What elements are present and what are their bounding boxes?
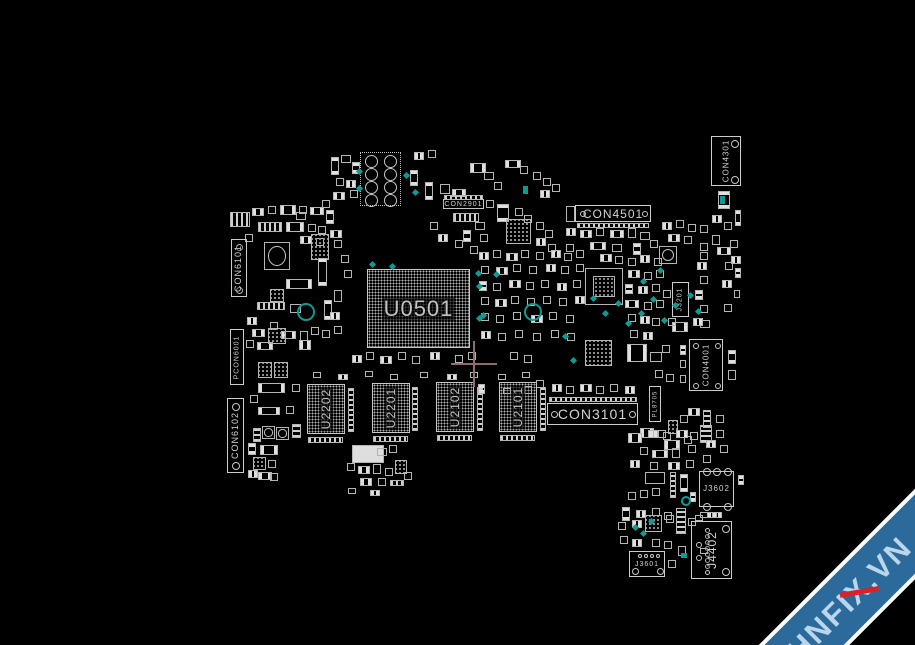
component-label: CON4301 bbox=[722, 140, 730, 183]
smd-part bbox=[693, 318, 703, 326]
smd-part bbox=[520, 166, 528, 174]
smd-part bbox=[552, 184, 560, 192]
smd-part bbox=[680, 474, 688, 492]
smd-part bbox=[248, 470, 258, 478]
smd-part bbox=[334, 326, 342, 334]
pad-circle bbox=[580, 211, 586, 217]
smd-part bbox=[495, 299, 507, 307]
component-label: CON4501 bbox=[583, 208, 643, 220]
smd-part bbox=[250, 395, 258, 403]
smd-part bbox=[644, 302, 652, 310]
smd-part bbox=[580, 230, 592, 238]
component-con3101[interactable]: CON3101 bbox=[547, 403, 638, 425]
smd-part bbox=[730, 240, 738, 248]
smd-part bbox=[663, 290, 671, 298]
smd-part bbox=[700, 252, 708, 260]
smd-part bbox=[590, 242, 606, 250]
smd-part bbox=[493, 250, 501, 258]
smd-part bbox=[688, 224, 696, 232]
smd-part bbox=[280, 205, 296, 215]
smd-part bbox=[670, 472, 676, 498]
smd-part bbox=[656, 300, 664, 308]
pad-circle bbox=[724, 503, 732, 511]
smd-part bbox=[248, 443, 256, 455]
component-label: U2202 bbox=[319, 387, 333, 431]
smd-part bbox=[540, 387, 546, 431]
smd-part bbox=[511, 296, 519, 304]
component-label: U2101 bbox=[511, 385, 525, 429]
smd-part bbox=[580, 384, 592, 392]
component-con6101[interactable]: CON6101 bbox=[231, 239, 247, 297]
smd-part bbox=[292, 424, 301, 438]
smd-part bbox=[478, 384, 485, 394]
smd-part bbox=[498, 374, 506, 380]
smd-part bbox=[253, 428, 261, 442]
via-marker bbox=[369, 261, 376, 268]
smd-part bbox=[385, 468, 393, 476]
smd-part bbox=[707, 512, 717, 518]
smd-part bbox=[274, 362, 288, 378]
smd-part bbox=[543, 178, 551, 186]
smd-part bbox=[697, 262, 707, 270]
component-label: CON6102 bbox=[231, 412, 240, 459]
pad-circle bbox=[656, 554, 660, 558]
component-u2201[interactable]: U2201 bbox=[372, 383, 410, 433]
smd-part bbox=[479, 252, 489, 260]
pad-circle bbox=[629, 411, 636, 418]
smd-part bbox=[268, 460, 276, 468]
smd-part bbox=[668, 234, 680, 242]
smd-part bbox=[566, 386, 574, 394]
smd-part bbox=[688, 445, 696, 453]
smd-part bbox=[533, 172, 541, 180]
smd-part bbox=[333, 192, 345, 200]
smd-part bbox=[712, 235, 720, 245]
smd-part bbox=[346, 180, 356, 188]
smd-part bbox=[566, 228, 576, 236]
smd-part bbox=[561, 266, 569, 274]
smd-part bbox=[712, 215, 722, 223]
smd-part bbox=[529, 266, 537, 274]
smd-part bbox=[350, 190, 358, 198]
component-j4402[interactable]: J4402 bbox=[691, 521, 732, 579]
smd-part bbox=[515, 330, 523, 338]
smd-part bbox=[506, 219, 531, 244]
smd-part bbox=[552, 384, 562, 392]
smd-part bbox=[573, 280, 581, 288]
smd-part bbox=[566, 206, 575, 222]
smd-part bbox=[252, 208, 264, 216]
component-pl8705[interactable]: PL8705 bbox=[649, 386, 661, 422]
smd-part bbox=[680, 345, 686, 355]
component-label: J3601 bbox=[635, 561, 659, 568]
smd-part bbox=[310, 207, 324, 215]
smd-part bbox=[676, 430, 688, 438]
via-marker bbox=[570, 357, 577, 364]
smd-part bbox=[447, 374, 457, 380]
smd-part bbox=[690, 432, 698, 440]
component-label: CON2901 bbox=[444, 201, 482, 208]
smd-part bbox=[628, 228, 636, 238]
smd-part bbox=[625, 300, 639, 308]
smd-part bbox=[524, 355, 532, 363]
component-con4001[interactable]: CON4001 bbox=[689, 339, 723, 391]
smd-part bbox=[650, 352, 662, 362]
smd-part bbox=[640, 490, 648, 498]
pad-circle bbox=[657, 568, 664, 575]
smd-part bbox=[545, 230, 553, 238]
smd-part bbox=[348, 388, 354, 432]
smd-part bbox=[734, 290, 740, 298]
component-label: J3201 bbox=[677, 287, 684, 311]
smd-part bbox=[655, 370, 663, 378]
smd-part bbox=[437, 435, 472, 441]
smd-part bbox=[672, 448, 680, 458]
pad-circle bbox=[722, 568, 730, 576]
smd-part bbox=[551, 250, 561, 258]
smd-part bbox=[676, 220, 684, 228]
smd-part bbox=[632, 539, 642, 547]
smd-part bbox=[286, 279, 312, 289]
smd-part bbox=[331, 157, 339, 175]
component-u2102[interactable]: U2102 bbox=[436, 382, 474, 432]
smd-part bbox=[652, 488, 660, 496]
smd-part bbox=[628, 492, 636, 500]
pad-circle bbox=[642, 211, 648, 217]
smd-part bbox=[577, 223, 649, 228]
smd-part bbox=[610, 230, 624, 238]
pad-circle bbox=[365, 194, 378, 207]
smd-part bbox=[703, 410, 711, 428]
component-con2901[interactable]: CON2901 bbox=[443, 199, 484, 209]
smd-part bbox=[716, 430, 724, 438]
smd-part bbox=[412, 387, 418, 431]
component-u0501[interactable]: U0501 bbox=[367, 269, 470, 348]
smd-part bbox=[358, 466, 370, 474]
smd-part bbox=[380, 356, 392, 364]
mounting-hole bbox=[681, 496, 691, 506]
pad-circle bbox=[722, 525, 730, 533]
mounting-hole bbox=[297, 303, 315, 321]
smd-part bbox=[264, 242, 290, 270]
component-label: CON3101 bbox=[558, 407, 627, 421]
smd-part bbox=[276, 427, 289, 440]
boardview-canvas[interactable]: CON6101PCON6001CON6102U0501U2202U2201U21… bbox=[0, 0, 915, 645]
smd-part bbox=[684, 236, 692, 244]
pad-circle bbox=[731, 140, 739, 148]
smd-part bbox=[543, 296, 551, 304]
smd-part bbox=[627, 344, 647, 362]
pad-circle bbox=[384, 155, 397, 168]
smd-part bbox=[640, 316, 650, 324]
smd-part bbox=[724, 222, 732, 230]
smd-part bbox=[336, 178, 344, 186]
smd-part bbox=[663, 432, 671, 440]
smd-part bbox=[496, 315, 504, 323]
smd-part bbox=[652, 539, 660, 547]
smd-part bbox=[668, 462, 680, 470]
smd-part bbox=[252, 329, 265, 337]
smd-part bbox=[652, 318, 660, 326]
smd-part bbox=[716, 415, 724, 423]
pad-circle bbox=[232, 462, 240, 470]
smd-part bbox=[735, 210, 741, 226]
smd-part bbox=[475, 222, 485, 230]
smd-part bbox=[334, 240, 342, 248]
smd-part bbox=[493, 283, 501, 291]
pad-circle bbox=[693, 343, 699, 349]
smd-part bbox=[453, 213, 479, 222]
pad-circle bbox=[693, 383, 699, 389]
smd-part bbox=[668, 318, 676, 326]
smd-part bbox=[484, 172, 494, 180]
smd-part bbox=[522, 372, 530, 378]
smd-part bbox=[680, 375, 686, 383]
highlight-pad bbox=[523, 186, 528, 194]
smd-part bbox=[510, 352, 518, 360]
smd-part bbox=[258, 222, 282, 232]
pad-circle bbox=[644, 554, 648, 558]
smd-part bbox=[455, 240, 463, 248]
smd-part bbox=[318, 258, 327, 286]
smd-part bbox=[654, 258, 662, 266]
smd-part bbox=[620, 536, 628, 544]
smd-part bbox=[463, 230, 471, 242]
pad-circle bbox=[731, 176, 739, 184]
smd-part bbox=[618, 522, 626, 530]
smd-part bbox=[428, 150, 436, 158]
smd-part bbox=[536, 380, 544, 388]
smd-part bbox=[389, 445, 397, 453]
smd-part bbox=[706, 440, 716, 448]
smd-part bbox=[650, 240, 658, 248]
pad-circle bbox=[632, 568, 639, 575]
smd-part bbox=[633, 243, 641, 255]
component-j3602[interactable]: J3602 bbox=[699, 471, 734, 507]
smd-part bbox=[341, 255, 349, 263]
smd-part bbox=[308, 437, 343, 443]
component-u2202[interactable]: U2202 bbox=[307, 384, 345, 434]
smd-part bbox=[230, 212, 250, 227]
smd-part bbox=[700, 225, 708, 233]
smd-part bbox=[513, 264, 521, 272]
smd-part bbox=[688, 408, 700, 416]
via-marker bbox=[403, 172, 410, 179]
smd-part bbox=[414, 152, 424, 160]
smd-part bbox=[735, 268, 741, 278]
smd-part bbox=[725, 262, 733, 270]
smd-part bbox=[521, 250, 529, 258]
pad-circle bbox=[703, 503, 711, 511]
component-label: PL8705 bbox=[652, 391, 658, 418]
transformer-component bbox=[360, 152, 401, 206]
smd-part bbox=[536, 222, 544, 230]
smd-part bbox=[509, 280, 521, 288]
smd-part bbox=[334, 290, 342, 302]
smd-part bbox=[666, 374, 674, 382]
smd-part bbox=[262, 426, 275, 439]
pad-circle bbox=[365, 168, 378, 181]
smd-part bbox=[292, 384, 300, 392]
pad-circle bbox=[365, 181, 378, 194]
smd-part bbox=[666, 515, 674, 523]
smd-part bbox=[600, 254, 612, 262]
smd-part bbox=[366, 352, 374, 360]
smd-part bbox=[480, 234, 488, 242]
pad-circle bbox=[650, 554, 654, 558]
smd-part bbox=[347, 463, 355, 471]
smd-part bbox=[410, 170, 418, 186]
pad-circle bbox=[724, 468, 732, 476]
smd-part bbox=[526, 282, 534, 290]
smd-part bbox=[270, 289, 284, 302]
smd-part bbox=[330, 312, 340, 320]
smd-part bbox=[365, 371, 373, 377]
smd-part bbox=[494, 182, 502, 190]
smd-part bbox=[505, 160, 521, 168]
highlight-pad bbox=[720, 196, 725, 204]
component-label: U2201 bbox=[384, 386, 398, 430]
crosshair-cursor bbox=[473, 341, 475, 387]
smd-part bbox=[257, 302, 285, 310]
smd-part bbox=[326, 210, 334, 224]
smd-part bbox=[546, 264, 556, 272]
pad-circle bbox=[705, 570, 710, 575]
pad-circle bbox=[551, 411, 558, 418]
smd-part bbox=[566, 315, 574, 323]
smd-part bbox=[625, 284, 633, 294]
smd-part bbox=[676, 508, 686, 534]
smd-part bbox=[425, 182, 433, 200]
smd-part bbox=[640, 232, 650, 240]
smd-part bbox=[630, 330, 638, 338]
component-label: CON6101 bbox=[235, 244, 244, 291]
smd-part bbox=[662, 345, 670, 353]
pad-circle bbox=[365, 155, 378, 168]
smd-part bbox=[247, 317, 257, 325]
smd-part bbox=[640, 255, 650, 263]
smd-part bbox=[258, 362, 272, 378]
component-j3601[interactable]: J3601 bbox=[629, 551, 665, 577]
smd-part bbox=[720, 445, 728, 453]
pad-circle bbox=[696, 542, 702, 548]
smd-part bbox=[549, 312, 557, 320]
smd-part bbox=[412, 356, 420, 364]
smd-part bbox=[717, 247, 731, 255]
smd-part bbox=[341, 155, 351, 163]
smd-part bbox=[438, 234, 448, 242]
smd-part bbox=[430, 222, 438, 230]
smd-part bbox=[559, 298, 567, 306]
component-con4301[interactable]: CON4301 bbox=[711, 136, 741, 186]
smd-part bbox=[564, 253, 572, 261]
smd-part bbox=[628, 258, 636, 266]
pad-circle bbox=[696, 555, 702, 561]
smd-part bbox=[390, 480, 404, 486]
smd-part bbox=[551, 330, 559, 338]
smd-part bbox=[498, 333, 506, 341]
component-label: J3602 bbox=[703, 485, 730, 493]
smd-part bbox=[615, 256, 623, 264]
smd-part bbox=[420, 372, 428, 378]
smd-part bbox=[398, 352, 406, 360]
smd-part bbox=[299, 340, 311, 350]
smd-part bbox=[610, 384, 618, 392]
smd-part bbox=[640, 447, 648, 455]
smd-part bbox=[596, 228, 604, 236]
smd-part bbox=[486, 200, 494, 208]
pad-circle bbox=[715, 383, 721, 389]
component-pcon6001[interactable]: PCON6001 bbox=[230, 329, 244, 385]
component-label: U2102 bbox=[448, 385, 462, 429]
smd-part bbox=[695, 290, 703, 300]
smd-part bbox=[246, 340, 254, 348]
smd-part bbox=[338, 374, 348, 380]
smd-part bbox=[378, 478, 386, 486]
smd-part bbox=[628, 433, 642, 443]
smd-part bbox=[536, 252, 544, 260]
smd-part bbox=[322, 200, 330, 208]
smd-part bbox=[566, 244, 574, 252]
component-j3201[interactable]: J3201 bbox=[672, 282, 689, 317]
smd-part bbox=[370, 490, 380, 496]
smd-part bbox=[286, 406, 294, 414]
smd-part bbox=[313, 372, 321, 378]
smd-part bbox=[648, 430, 658, 438]
smd-part bbox=[513, 312, 521, 320]
smd-part bbox=[700, 243, 708, 251]
component-u2101[interactable]: U2101 bbox=[499, 382, 537, 432]
component-label: CON4001 bbox=[702, 344, 710, 387]
smd-part bbox=[703, 455, 711, 463]
smd-part bbox=[612, 244, 622, 252]
smd-part bbox=[268, 328, 286, 344]
smd-part bbox=[628, 270, 640, 278]
smd-part bbox=[440, 184, 450, 194]
highlight-pad bbox=[681, 553, 687, 558]
smd-part bbox=[728, 370, 736, 380]
smd-part bbox=[549, 397, 637, 402]
smd-part bbox=[373, 436, 408, 442]
component-label: PCON6001 bbox=[234, 335, 241, 379]
smd-part bbox=[330, 230, 342, 238]
pad-circle bbox=[703, 468, 711, 476]
component-con4501[interactable]: CON4501 bbox=[575, 205, 651, 222]
smd-part bbox=[533, 333, 541, 341]
smd-part bbox=[638, 286, 648, 294]
smd-part bbox=[664, 541, 672, 549]
smd-part bbox=[724, 304, 732, 312]
smd-part bbox=[575, 296, 585, 304]
smd-part bbox=[258, 383, 285, 393]
pad-circle bbox=[715, 343, 721, 349]
smd-part bbox=[258, 407, 280, 415]
via-marker bbox=[602, 310, 609, 317]
component-con6102[interactable]: CON6102 bbox=[227, 398, 244, 473]
smd-part bbox=[481, 297, 489, 305]
smd-part bbox=[260, 445, 278, 455]
smd-part bbox=[645, 472, 665, 484]
pad-circle bbox=[232, 403, 240, 411]
smd-part bbox=[622, 507, 630, 521]
component-label: J4402 bbox=[705, 531, 717, 569]
via-marker bbox=[661, 317, 668, 324]
smd-part bbox=[268, 206, 276, 214]
smd-part bbox=[728, 350, 736, 364]
smd-part bbox=[270, 473, 278, 481]
smd-part bbox=[348, 488, 356, 494]
smd-part bbox=[373, 464, 381, 474]
